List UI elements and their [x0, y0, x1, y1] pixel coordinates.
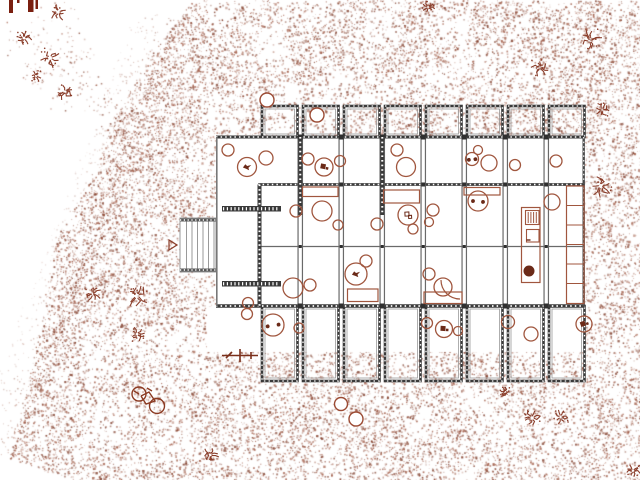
- plant-symbol: [58, 84, 72, 100]
- table-circle: [423, 268, 435, 280]
- plant-part: [594, 187, 600, 195]
- plant-part: [138, 335, 141, 341]
- plant-part: [23, 42, 25, 44]
- tree-circle: [335, 398, 348, 411]
- table-circle: [333, 220, 343, 230]
- plant-part: [44, 51, 46, 53]
- plant-part: [532, 411, 535, 416]
- plant-part: [130, 288, 132, 290]
- glyph-part: [320, 163, 326, 169]
- plant-part: [627, 474, 629, 476]
- glyph-part: [467, 157, 472, 162]
- top-bay: [344, 106, 380, 137]
- table-circle: [302, 153, 314, 165]
- plant-part: [94, 290, 100, 293]
- plant-symbol: [627, 465, 640, 477]
- plant-part: [561, 412, 562, 416]
- bottom-bay-inner: [347, 309, 377, 378]
- plant-part: [535, 75, 537, 77]
- plant-part: [557, 418, 560, 420]
- plant-part: [64, 92, 66, 94]
- plant-part: [429, 8, 432, 10]
- maroon-bar: [28, 0, 34, 12]
- plant-symbol: [553, 410, 569, 424]
- plant-part: [212, 456, 219, 457]
- table-circle: [550, 155, 562, 167]
- plant-part: [606, 109, 608, 111]
- plant-part: [603, 183, 609, 185]
- plant-part: [92, 289, 93, 293]
- column-node: [462, 304, 467, 309]
- plant-part: [138, 333, 144, 334]
- plant-part: [433, 5, 435, 7]
- plant-part: [206, 458, 208, 460]
- table-circle: [544, 194, 560, 210]
- plant-part: [31, 80, 33, 82]
- bottom-bay-ticks: [467, 306, 503, 381]
- maroon-bar: [36, 0, 39, 9]
- plant-part: [605, 114, 607, 116]
- table-circle: [524, 327, 538, 341]
- plant-part: [424, 9, 426, 11]
- plant-part: [59, 95, 61, 97]
- column-node: [421, 135, 426, 140]
- plant-part: [56, 14, 58, 18]
- plant-part: [32, 75, 35, 76]
- plant-part: [599, 188, 600, 198]
- top-bay-inner: [347, 109, 377, 134]
- table-glyph-hinge: [405, 212, 412, 219]
- bottom-bay-ticks: [303, 306, 339, 381]
- bottom-bay-ticks: [426, 306, 462, 381]
- plant-part: [52, 12, 56, 13]
- glyph-part: [440, 326, 445, 331]
- plant-part: [600, 179, 602, 181]
- table-glyph-block: [440, 326, 448, 331]
- plant-part: [505, 393, 506, 396]
- plant-part: [540, 61, 541, 66]
- plant-part: [603, 103, 605, 108]
- tree-circle: [260, 93, 274, 107]
- plant-part: [52, 59, 59, 61]
- plant-part: [55, 54, 57, 56]
- plant-part: [87, 296, 89, 298]
- plant-part: [20, 36, 22, 38]
- column-node: [545, 245, 548, 248]
- plant-part: [18, 39, 23, 41]
- plant-part: [636, 475, 638, 477]
- plant-part: [506, 391, 509, 393]
- furniture-rect: [348, 289, 379, 302]
- plant-part: [601, 111, 602, 114]
- column-node: [503, 135, 508, 140]
- plant-part: [421, 7, 423, 9]
- plant-symbol: [421, 1, 434, 12]
- plant-part: [589, 35, 591, 37]
- plant-part: [133, 328, 135, 330]
- plant-part: [587, 48, 589, 50]
- plant-part: [504, 387, 506, 389]
- plant-part: [563, 411, 565, 413]
- bottom-bay: [344, 306, 380, 381]
- plant-part: [595, 38, 597, 40]
- column-node: [462, 135, 467, 140]
- plant-part: [563, 417, 568, 419]
- plant-part: [597, 28, 599, 30]
- table-circle: [371, 218, 383, 230]
- plant-symbol: [85, 288, 100, 301]
- plant-part: [24, 32, 25, 37]
- plant-part: [528, 410, 532, 417]
- bottom-bay-ticks: [262, 306, 298, 381]
- plant-part: [502, 386, 504, 388]
- plant-part: [59, 13, 61, 15]
- maroon-bar: [17, 0, 20, 3]
- glyph-part: [243, 164, 252, 170]
- column-node: [422, 245, 425, 248]
- top-bay-inner: [552, 109, 582, 134]
- column-node: [503, 304, 508, 309]
- plant-part: [20, 34, 22, 36]
- glyph-part: [352, 271, 360, 277]
- plant-part: [41, 51, 43, 53]
- plant-part: [133, 288, 135, 290]
- plant-part: [592, 38, 602, 39]
- plant-part: [539, 420, 541, 422]
- table-circle: [427, 204, 439, 216]
- plant-part: [583, 40, 588, 44]
- glyph-part: [409, 215, 412, 218]
- column-node: [462, 183, 466, 187]
- column-node: [381, 245, 384, 248]
- column-node: [298, 304, 303, 309]
- column-node: [463, 245, 466, 248]
- column-node: [503, 183, 507, 187]
- plant-part: [17, 36, 19, 38]
- plant-part: [567, 421, 569, 423]
- top-bay: [467, 106, 503, 137]
- plant-part: [88, 296, 92, 301]
- plant-part: [610, 190, 612, 192]
- table-glyph-dots: [471, 199, 485, 204]
- bottom-bay: [467, 306, 503, 381]
- plant-part: [25, 31, 27, 33]
- plant-part: [138, 329, 142, 333]
- furniture-rect: [303, 187, 339, 197]
- plant-part: [132, 335, 135, 337]
- plant-part: [61, 93, 64, 100]
- glyph-part: [276, 322, 281, 327]
- plant-part: [66, 92, 68, 94]
- plant-part: [205, 456, 207, 458]
- table-circle: [468, 191, 488, 211]
- plant-part: [509, 387, 511, 389]
- table-circle: [242, 309, 253, 320]
- plant-part: [133, 331, 136, 333]
- plant-part: [603, 102, 605, 104]
- plant-symbol: [524, 410, 541, 426]
- bottom-bay-inner: [388, 309, 418, 378]
- tree-circle: [310, 108, 324, 122]
- plant-part: [567, 420, 569, 422]
- table-glyph-dots: [467, 156, 478, 163]
- top-bay: [508, 106, 544, 137]
- plant-part: [71, 95, 73, 97]
- plant-symbol: [130, 286, 148, 307]
- column-node: [339, 135, 344, 140]
- plant-part: [596, 108, 600, 110]
- plant-part: [426, 1, 428, 3]
- plant-part: [427, 8, 428, 12]
- table-circle: [391, 144, 403, 156]
- bicycle-part: [147, 388, 152, 391]
- plant-part: [596, 45, 598, 47]
- plant-part: [209, 452, 211, 454]
- plant-part: [597, 110, 601, 114]
- plant-part: [524, 413, 526, 415]
- top-bay-inner: [388, 109, 418, 134]
- plant-part: [25, 39, 28, 44]
- plant-symbol: [583, 28, 602, 49]
- table-circle: [259, 151, 273, 165]
- bottom-bay-inner: [511, 309, 541, 378]
- plant-part: [93, 292, 95, 294]
- plant-part: [94, 295, 95, 300]
- plant-part: [631, 472, 633, 475]
- table-glyph-bird: [243, 164, 252, 170]
- top-bay: [262, 106, 298, 137]
- plant-part: [17, 32, 19, 34]
- bicycle-part: [134, 391, 139, 394]
- table-circle: [304, 279, 316, 291]
- plant-part: [33, 79, 35, 81]
- glyph-part: [446, 329, 449, 332]
- site-plan-stage: [0, 0, 640, 480]
- top-bay-ticks: [262, 106, 298, 137]
- plant-part: [598, 181, 600, 183]
- table-circle: [510, 160, 521, 171]
- column-node: [504, 245, 507, 248]
- plant-part: [500, 390, 504, 392]
- plant-part: [500, 392, 504, 394]
- plant-part: [208, 454, 210, 456]
- top-bay: [549, 106, 585, 137]
- plant-part: [44, 47, 46, 49]
- plant-part: [541, 64, 543, 66]
- plant-symbol: [531, 59, 548, 76]
- furniture-rect: [424, 292, 462, 304]
- plant-part: [536, 67, 538, 69]
- plant-symbol: [31, 70, 41, 82]
- top-bay-ticks: [426, 106, 462, 137]
- column-node: [380, 304, 385, 309]
- bottom-bay-inner: [265, 309, 295, 378]
- top-bay-inner: [429, 109, 459, 134]
- plant-part: [431, 3, 433, 5]
- glyph-part: [471, 199, 475, 203]
- table-circle: [283, 278, 303, 298]
- tree-circle: [349, 412, 363, 426]
- plant-part: [503, 390, 505, 392]
- maroon-bar: [9, 0, 13, 13]
- top-bay-ticks: [549, 106, 585, 137]
- plant-part: [137, 292, 139, 294]
- table-glyph-bird: [352, 271, 360, 277]
- plant-part: [63, 85, 65, 90]
- plant-part: [555, 410, 557, 412]
- plant-part: [61, 10, 63, 12]
- plant-symbol: [17, 31, 32, 45]
- table-circle: [408, 224, 418, 234]
- plant-part: [588, 38, 590, 40]
- plant-part: [602, 186, 604, 188]
- plant-part: [525, 417, 531, 418]
- plant-part: [90, 293, 92, 295]
- plant-part: [553, 418, 555, 420]
- plant-symbol: [500, 386, 510, 396]
- bottom-bay-ticks: [385, 306, 421, 381]
- sink: [524, 266, 534, 276]
- plant-part: [211, 448, 213, 450]
- bottom-bay-inner: [306, 309, 336, 378]
- bottom-bay-inner: [429, 309, 459, 378]
- plant-part: [47, 52, 49, 57]
- plant-part: [59, 7, 61, 9]
- column-node: [544, 135, 549, 140]
- bottom-bay: [303, 306, 339, 381]
- plant-part: [146, 290, 148, 292]
- plant-part: [85, 289, 87, 291]
- plant-part: [528, 417, 530, 419]
- column-node: [299, 245, 302, 248]
- plant-part: [54, 62, 56, 64]
- plant-part: [40, 70, 42, 72]
- plant-part: [37, 70, 39, 72]
- table-glyph-block: [320, 163, 329, 169]
- top-bay-inner: [470, 109, 500, 134]
- plant-part: [22, 32, 24, 37]
- plant-part: [136, 289, 138, 291]
- glyph-part: [326, 167, 329, 170]
- plant-symbol: [41, 47, 59, 67]
- plant-part: [132, 340, 134, 342]
- bicycle-frame: [141, 392, 155, 404]
- plant-part: [211, 453, 217, 454]
- plant-part: [210, 456, 212, 458]
- plant-part: [430, 6, 432, 8]
- plant-part: [602, 111, 605, 115]
- plant-part: [38, 80, 40, 82]
- table-glyph-block: [580, 320, 589, 327]
- plant-part: [138, 286, 141, 294]
- plant-part: [136, 337, 138, 339]
- plant-part: [633, 471, 635, 473]
- bottom-bay-inner: [470, 309, 500, 378]
- plant-part: [502, 394, 504, 396]
- plant-part: [54, 7, 56, 9]
- table-glyph-dots: [265, 321, 281, 329]
- plant-part: [529, 420, 531, 422]
- plant-part: [525, 419, 531, 420]
- bottom-bay: [262, 306, 298, 381]
- bottom-bay: [385, 306, 421, 381]
- plant-part: [144, 299, 146, 301]
- plant-part: [49, 62, 51, 64]
- column-node: [544, 304, 549, 309]
- glyph-part: [265, 324, 270, 329]
- plant-part: [583, 35, 589, 39]
- table-circle: [312, 201, 332, 221]
- plant-part: [136, 298, 141, 306]
- plant-part: [590, 31, 592, 38]
- glyph-part: [481, 200, 485, 204]
- column-node: [544, 183, 548, 187]
- bottom-bay-ticks: [344, 306, 380, 381]
- column-node: [340, 245, 343, 248]
- plant-symbol: [205, 448, 219, 460]
- plant-symbol: [596, 102, 609, 116]
- plant-part: [634, 472, 635, 476]
- plant-part: [36, 73, 38, 75]
- bench-triangle: [169, 240, 177, 250]
- plant-part: [527, 411, 529, 413]
- plant-part: [531, 60, 533, 62]
- top-bay: [426, 106, 462, 137]
- plant-part: [607, 115, 609, 117]
- plant-symbol: [592, 177, 612, 198]
- column-node: [339, 304, 344, 309]
- plant-part: [54, 12, 56, 14]
- plant-part: [92, 288, 94, 290]
- furniture-rect: [384, 190, 420, 203]
- plant-part: [558, 410, 560, 416]
- plant-symbol: [52, 4, 66, 20]
- plant-part: [140, 334, 142, 336]
- glyph-part: [473, 157, 478, 162]
- table-circle: [397, 158, 416, 177]
- plant-part: [210, 450, 213, 454]
- top-bay-ticks: [344, 106, 380, 137]
- table-circle: [481, 155, 497, 171]
- top-bay: [385, 106, 421, 137]
- plant-part: [600, 104, 602, 106]
- top-bay-ticks: [467, 106, 503, 137]
- plant-part: [533, 420, 535, 426]
- top-bay-ticks: [508, 106, 544, 137]
- column-node: [421, 183, 425, 187]
- plant-part: [541, 59, 543, 61]
- plant-part: [537, 66, 539, 68]
- table-circle: [434, 278, 452, 296]
- plant-part: [611, 186, 613, 188]
- floor-plan-drawing: [0, 0, 640, 480]
- plant-part: [33, 76, 35, 78]
- bottom-bay: [426, 306, 462, 381]
- plant-symbol: [132, 327, 145, 342]
- plant-part: [93, 294, 95, 296]
- plant-part: [143, 335, 145, 337]
- plant-part: [61, 84, 63, 86]
- top-bay-inner: [511, 109, 541, 134]
- top-bay-ticks: [385, 106, 421, 137]
- column-node: [421, 304, 426, 309]
- plant-part: [143, 337, 145, 339]
- plant-part: [60, 10, 66, 11]
- table-circle: [222, 144, 234, 156]
- bicycle-icon: [150, 399, 165, 414]
- column-node: [339, 183, 343, 187]
- stove: [526, 211, 540, 225]
